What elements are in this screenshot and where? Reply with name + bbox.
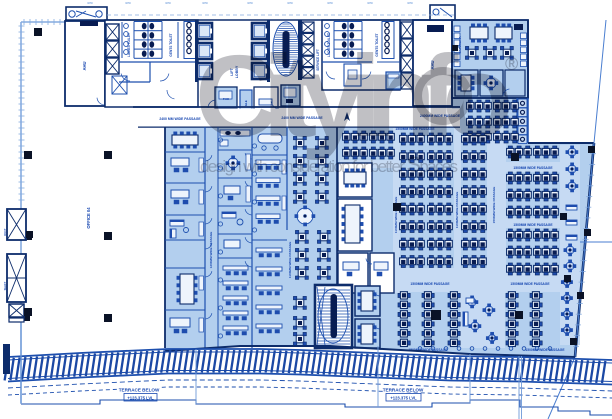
svg-text:3250: 3250 [287, 1, 293, 5]
svg-text:OFFICE 04: OFFICE 04 [86, 207, 91, 229]
svg-text:1500MM WIDE PASSAGE: 1500MM WIDE PASSAGE [525, 348, 565, 352]
svg-text:SHAFT: SHAFT [3, 281, 7, 290]
svg-text:1100MM WIDE PASSAGE: 1100MM WIDE PASSAGE [455, 192, 459, 229]
svg-text:LADIES TOILET: LADIES TOILET [127, 33, 131, 57]
svg-text:GENTS TOILET: GENTS TOILET [169, 33, 173, 56]
svg-text:1500MM WIDE PASSAGE: 1500MM WIDE PASSAGE [492, 187, 496, 224]
svg-text:3250: 3250 [327, 1, 333, 5]
svg-text:Cityinfo: Cityinfo [195, 31, 513, 161]
svg-text:1500MM WIDE PASSAGE: 1500MM WIDE PASSAGE [513, 166, 553, 170]
svg-text:1500MM WIDE PASSAGE: 1500MM WIDE PASSAGE [510, 282, 550, 286]
svg-text:1500MM WIDE PASSAGE: 1500MM WIDE PASSAGE [410, 282, 450, 286]
svg-text:1100MM WIDE PASSAGE: 1100MM WIDE PASSAGE [394, 197, 398, 234]
svg-text:®: ® [505, 54, 518, 74]
svg-text:3250: 3250 [202, 1, 208, 5]
svg-text:1200MM WIDE PASSAGE: 1200MM WIDE PASSAGE [209, 232, 213, 269]
svg-text:AHU: AHU [82, 61, 87, 70]
svg-text:+123.375 LVL: +123.375 LVL [390, 396, 417, 401]
svg-text:3250: 3250 [125, 1, 131, 5]
svg-text:1100MM WIDE PASSAGE: 1100MM WIDE PASSAGE [288, 242, 292, 279]
svg-text:TERRACE BELOW: TERRACE BELOW [119, 388, 160, 393]
svg-text:3250: 3250 [165, 1, 171, 5]
svg-text:3250: 3250 [367, 1, 373, 5]
svg-text:3250: 3250 [407, 1, 413, 5]
svg-text:3250: 3250 [247, 1, 253, 5]
svg-text:3250: 3250 [87, 1, 93, 5]
svg-text:1500MM WIDE PASSAGE: 1500MM WIDE PASSAGE [513, 223, 553, 227]
svg-text:TERRACE BELOW: TERRACE BELOW [383, 388, 424, 393]
svg-text:DUCT: DUCT [3, 228, 7, 236]
